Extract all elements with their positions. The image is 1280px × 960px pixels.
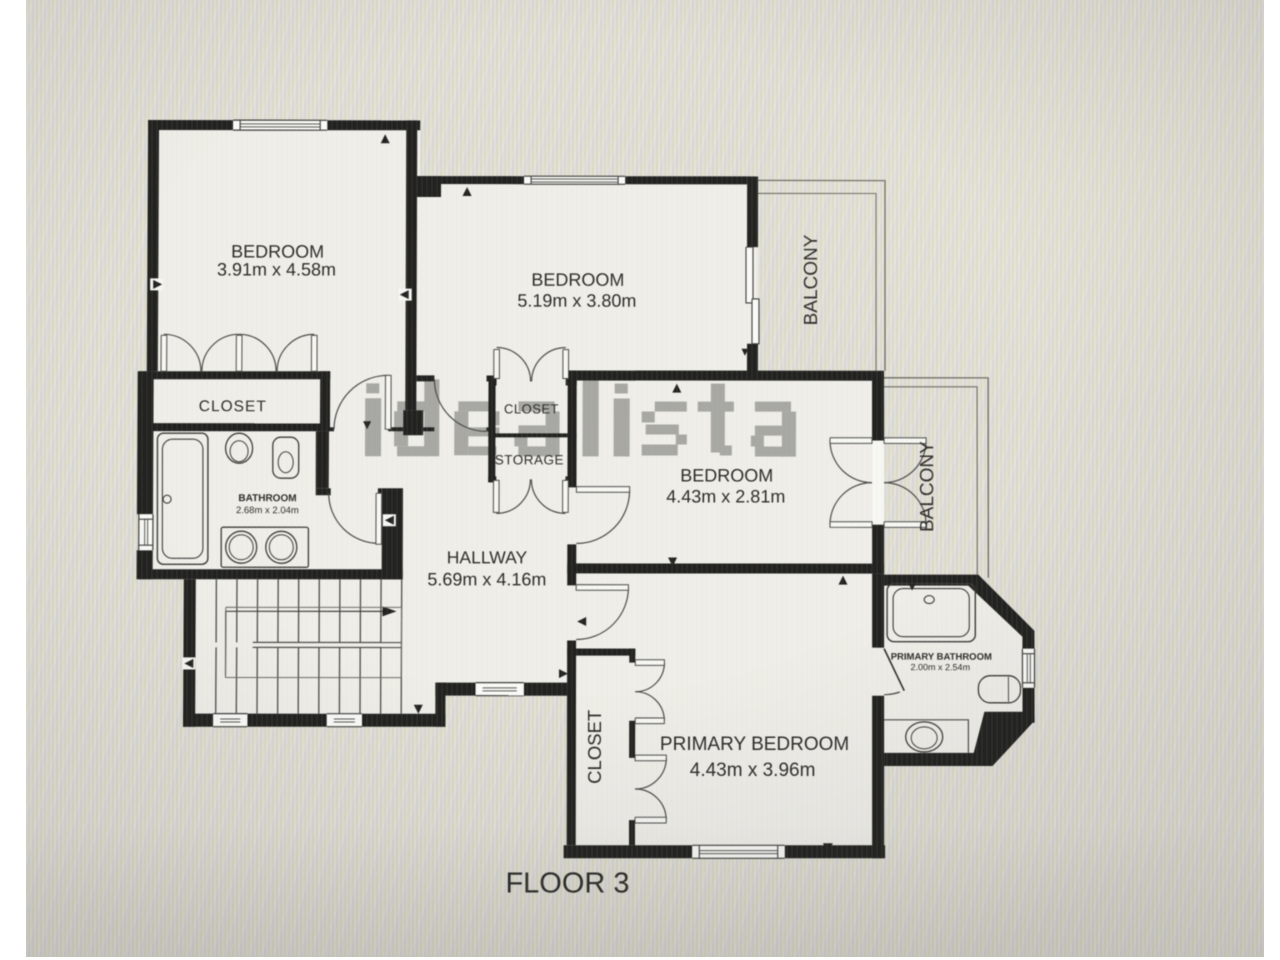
svg-text:5.19m x 3.80m: 5.19m x 3.80m <box>517 291 636 311</box>
svg-text:FLOOR 3: FLOOR 3 <box>505 868 629 900</box>
svg-text:BEDROOM: BEDROOM <box>680 465 773 485</box>
svg-text:5.69m x 4.16m: 5.69m x 4.16m <box>427 569 546 589</box>
svg-text:CLOSET: CLOSET <box>584 710 605 784</box>
svg-text:3.91m x 4.58m: 3.91m x 4.58m <box>217 259 336 279</box>
svg-text:BALCONY: BALCONY <box>801 234 822 325</box>
svg-text:PRIMARY BATHROOM: PRIMARY BATHROOM <box>891 652 992 663</box>
svg-text:2.00m x 2.54m: 2.00m x 2.54m <box>911 662 971 672</box>
svg-text:BALCONY: BALCONY <box>917 441 938 532</box>
svg-text:HALLWAY: HALLWAY <box>447 547 528 567</box>
svg-text:4.43m x 3.96m: 4.43m x 3.96m <box>690 760 816 781</box>
svg-text:STORAGE: STORAGE <box>495 452 564 467</box>
svg-text:BEDROOM: BEDROOM <box>531 270 624 290</box>
svg-text:PRIMARY BEDROOM: PRIMARY BEDROOM <box>660 734 849 755</box>
svg-text:4.43m x 2.81m: 4.43m x 2.81m <box>666 486 785 506</box>
svg-text:BATHROOM: BATHROOM <box>238 493 296 504</box>
svg-text:CLOSET: CLOSET <box>504 401 559 416</box>
svg-text:2.68m x 2.04m: 2.68m x 2.04m <box>236 505 299 516</box>
svg-text:CLOSET: CLOSET <box>199 398 267 415</box>
